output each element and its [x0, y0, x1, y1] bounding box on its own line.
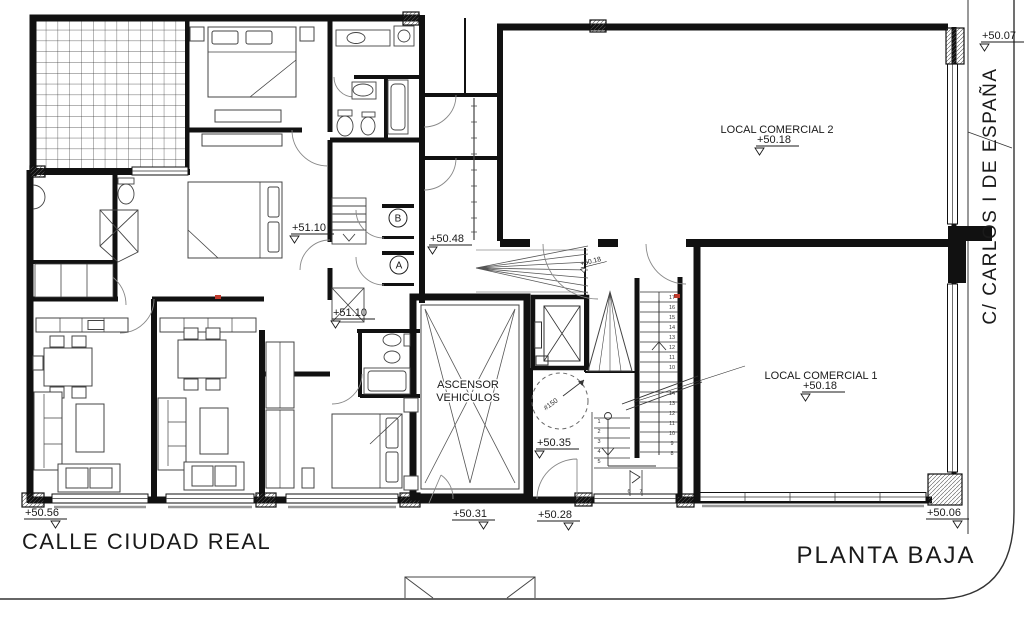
elevation-triangle-icon [581, 268, 587, 274]
entrance-steps [332, 198, 366, 322]
elevation-triangle-icon [51, 521, 60, 528]
ascensor-label-line2: VEHICULOS [436, 392, 500, 404]
living-room-2 [158, 318, 256, 490]
elevation-marker: +50.48 [428, 233, 472, 254]
elevation-triangle-icon [428, 247, 437, 254]
stair-step-number: 5 [597, 459, 600, 465]
core-b-label: B [395, 214, 402, 225]
stair-step-number: 8 [670, 451, 673, 457]
elevation-triangle-icon [535, 451, 544, 458]
elevation-value: +50.31 [453, 508, 487, 520]
bathroom-left [33, 178, 138, 262]
stair-step-number: 13 [669, 335, 675, 341]
stair-step-number: 9 [670, 441, 673, 447]
elevation-value: +50.28 [538, 509, 572, 521]
street-name-bottom: CALLE CIUDAD REAL [22, 529, 271, 554]
elevation-triangle-icon [755, 148, 764, 155]
elevation-triangle-icon [331, 321, 340, 328]
stair-step-number: 1 [597, 419, 600, 425]
elevation-value: +50.18 [803, 380, 837, 392]
living-room-1 [33, 318, 128, 492]
sheet-title: PLANTA BAJA [797, 542, 976, 569]
elevation-value: +50.48 [430, 233, 464, 245]
floor-plan-drawing: #150 B A LOCAL COMERCIAL 2 LOCAL COMERCI… [0, 0, 1024, 621]
elevation-triangle-icon [980, 44, 989, 51]
kerb-ramp [405, 577, 535, 598]
stair-step-number: 2 [597, 429, 600, 435]
elevation-triangle-icon [479, 522, 488, 529]
elevation-triangle-icon [564, 523, 573, 530]
dresser-1 [215, 110, 281, 122]
drawing-sheet: #150 B A LOCAL COMERCIAL 2 LOCAL COMERCI… [0, 0, 1024, 621]
elevation-marker: +50.18 [755, 134, 799, 155]
bedroom-3 [266, 342, 418, 490]
stair-cores: B A [389, 209, 408, 274]
stair-step-number: 12 [669, 345, 675, 351]
elevation-value: +50.07 [982, 30, 1016, 42]
dresser-2 [202, 134, 282, 146]
elevation-value: +50.18 [580, 256, 602, 268]
ascensor-label-line1: ASCENSOR [437, 379, 499, 391]
corridor-partition [471, 98, 477, 240]
stair-step-number: 10 [669, 365, 675, 371]
elevation-marker: +50.07 [980, 30, 1024, 51]
elevation-marker: +50.18 [579, 255, 608, 274]
stair-step-number: 3 [597, 439, 600, 445]
elevation-value: +51.10 [292, 222, 326, 234]
stair-step-number: 16 [669, 305, 675, 311]
elevation-marker: +51.10 [331, 307, 375, 328]
elevation-marker: +50.28 [537, 509, 580, 530]
elevation-value: +50.56 [25, 507, 59, 519]
stair-step-number: 11 [669, 421, 675, 427]
elevation-value: +50.18 [757, 134, 791, 146]
elevation-value: +51.10 [333, 307, 367, 319]
elevation-triangle-icon [953, 521, 962, 528]
bed-2 [188, 182, 282, 258]
bathroom-top [336, 26, 414, 136]
stair-step-number: 14 [669, 391, 675, 397]
elevation-triangle-icon [290, 236, 299, 243]
passenger-elevator [533, 297, 587, 368]
elevation-triangle-icon [801, 394, 810, 401]
stair-step-number: 12 [669, 411, 675, 417]
ramp-fan-lines [476, 246, 588, 293]
shaft-circle: #150 [532, 373, 588, 429]
bed-1 [190, 27, 314, 97]
street-name-right: C/ CARLOS I DE ESPAÑA [979, 67, 1001, 324]
stair-step-number: 17 [669, 295, 675, 301]
elevation-value: +50.35 [537, 437, 571, 449]
bathroom-bottom [364, 334, 410, 394]
elevation-marker: +50.31 [452, 508, 495, 529]
elevation-marker: +50.06 [926, 507, 969, 528]
core-a-label: A [396, 261, 403, 272]
stair-step-number: 7 [639, 489, 642, 495]
stair-step-number: 15 [669, 315, 675, 321]
stair-step-number: 14 [669, 325, 675, 331]
stair-step-number: 4 [597, 449, 600, 455]
stair-step-number: 11 [669, 355, 675, 361]
elevation-marker: +50.56 [24, 507, 67, 528]
shaft-diameter-note: #150 [543, 397, 560, 412]
understair-void [588, 292, 632, 371]
stair-step-number: 6 [627, 489, 630, 495]
elevation-value: +50.06 [927, 507, 961, 519]
elevation-marker: +50.18 [801, 380, 845, 401]
stair-step-number: 10 [669, 431, 675, 437]
stair-break-line [622, 366, 745, 410]
closet [35, 264, 113, 297]
stair-step-number: 13 [669, 401, 675, 407]
elevation-marker: +50.35 [535, 437, 579, 458]
tiled-patio [34, 19, 186, 169]
